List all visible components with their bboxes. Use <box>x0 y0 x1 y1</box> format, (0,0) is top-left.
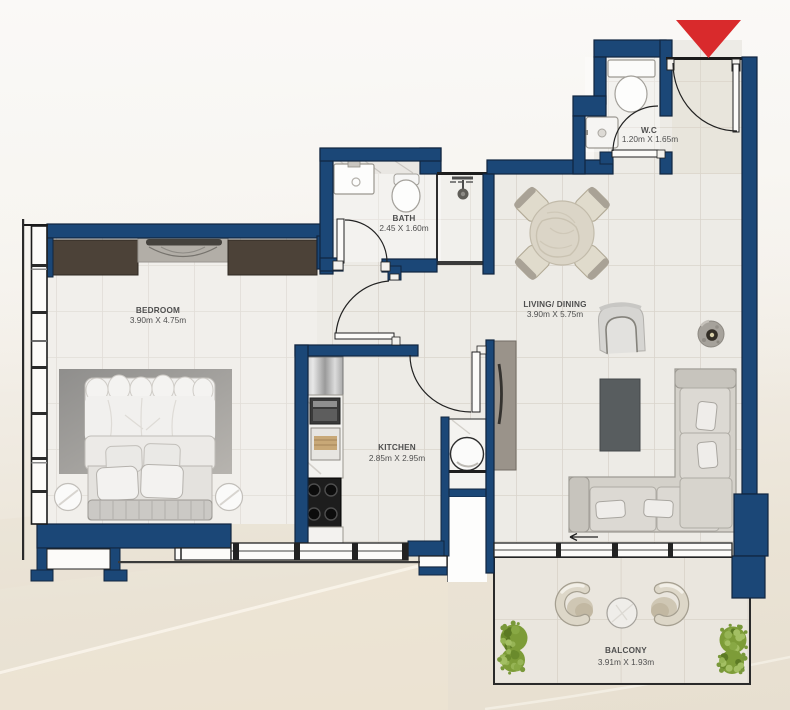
svg-text:BEDROOM: BEDROOM <box>136 306 180 315</box>
svg-text:2.85m X 2.95m: 2.85m X 2.95m <box>369 453 425 463</box>
svg-text:LIVING/ DINING: LIVING/ DINING <box>523 300 586 309</box>
svg-text:1.20m X 1.65m: 1.20m X 1.65m <box>622 134 678 144</box>
svg-text:2.45 X 1.60m: 2.45 X 1.60m <box>379 223 428 233</box>
svg-text:BATH: BATH <box>393 214 416 223</box>
svg-text:3.90m X 4.75m: 3.90m X 4.75m <box>130 315 186 325</box>
svg-text:3.91m X 1.93m: 3.91m X 1.93m <box>598 657 654 667</box>
svg-text:KITCHEN: KITCHEN <box>378 443 416 452</box>
svg-text:BALCONY: BALCONY <box>605 646 647 655</box>
svg-text:3.90m X 5.75m: 3.90m X 5.75m <box>527 309 583 319</box>
